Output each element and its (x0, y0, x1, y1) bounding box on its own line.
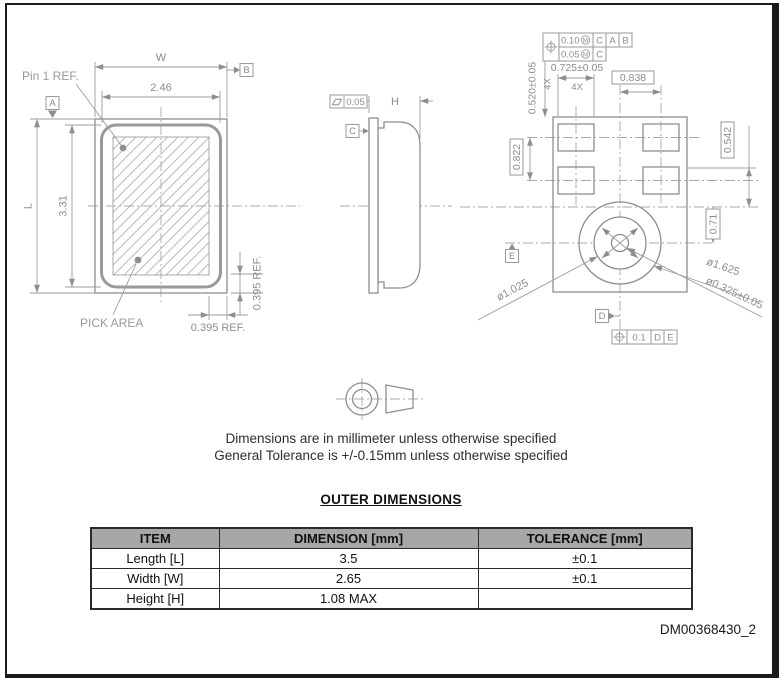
datum-a-flag: A (46, 97, 59, 119)
fcf-r2-datum1: C (596, 50, 603, 61)
pad-pitch-dim: 0.822 (511, 144, 523, 170)
side-view: H 0.05 C (330, 95, 452, 293)
datum-e-flag: E (506, 244, 519, 263)
fcf-r2-mmc: M (583, 52, 588, 59)
pad-height-dim: 0.520±0.05 (527, 62, 539, 115)
ref-right-dim: 0.395 REF. (252, 256, 264, 310)
bottom-view: 0.10 M C A B 0.05 M C 0.520±0.05 4X 0.72… (460, 33, 765, 344)
fcf-r1-datum1: C (596, 36, 603, 47)
document-number: DM00368430_2 (660, 622, 756, 637)
note-line-1: Dimensions are in millimeter unless othe… (0, 431, 782, 448)
note-line-2: General Tolerance is +/-0.15mm unless ot… (0, 448, 782, 465)
pick-area-hatch (113, 137, 209, 275)
fcf2-datum1: D (654, 333, 661, 344)
fcf2-tol: 0.1 (632, 333, 645, 344)
datum-c-label: C (349, 126, 356, 137)
cell-item: Length [L] (91, 549, 219, 569)
col-header-tolerance: TOLERANCE [mm] (478, 528, 692, 549)
cell-item: Width [W] (91, 569, 219, 589)
hole-dia: ø0.325±0.05 (704, 275, 765, 312)
fcf-r1-datum2: A (609, 36, 616, 47)
table-row-width: Width [W] 2.65 ±0.1 (91, 569, 692, 589)
height-label: H (391, 96, 399, 108)
general-notes: Dimensions are in millimeter unless othe… (0, 431, 782, 464)
lid-length-dim: 3.31 (58, 195, 70, 216)
cell-dimension: 2.65 (219, 569, 478, 589)
fcf-r1-mmc: M (583, 38, 588, 45)
table-header-row: ITEM DIMENSION [mm] TOLERANCE [mm] (91, 528, 692, 549)
datum-b-flag: B (227, 64, 253, 77)
drawing-sheet: W 2.46 B A L (0, 0, 782, 685)
table-title: OUTER DIMENSIONS (0, 492, 782, 507)
cell-tolerance: ±0.1 (478, 549, 692, 569)
row-offset-dim: 0.542 (722, 127, 734, 153)
col-header-dimension: DIMENSION [mm] (219, 528, 478, 549)
fcf2-datum2: E (667, 333, 673, 344)
ref-bottom-dim: 0.395 REF. (191, 322, 245, 334)
pin1-ref-label: Pin 1 REF. (22, 69, 79, 83)
cell-dimension: 1.08 MAX (219, 589, 478, 610)
front-width-label: W (156, 52, 167, 64)
ring-inner-dia: ø1.025 (495, 277, 531, 304)
flatness-value: 0.05 (346, 97, 365, 108)
substrate-profile (369, 118, 378, 293)
pin1-dot (120, 145, 127, 152)
pad-width-qty: 4X (571, 82, 583, 93)
port-offset-dim: 0.71 (708, 214, 720, 235)
pad-width-dim: 0.725±0.05 (551, 62, 604, 74)
front-view: W 2.46 B A L (22, 52, 300, 334)
datum-e-label: E (509, 251, 515, 262)
col-header-item: ITEM (91, 528, 219, 549)
table-row-length: Length [L] 3.5 ±0.1 (91, 549, 692, 569)
datum-b-label: B (243, 65, 249, 76)
cell-tolerance (478, 589, 692, 610)
table-row-height: Height [H] 1.08 MAX (91, 589, 692, 610)
cell-item: Height [H] (91, 589, 219, 610)
pad-height-qty: 4X (543, 78, 554, 90)
third-angle-projection-icon (336, 378, 426, 420)
pick-area-label: PICK AREA (80, 316, 143, 330)
datum-a-label: A (49, 98, 56, 109)
fcf-r1-datum3: B (622, 36, 628, 47)
hole-position-fcf: 0.1 D E (612, 330, 677, 344)
front-length-label: L (23, 203, 35, 209)
cell-tolerance: ±0.1 (478, 569, 692, 589)
technical-drawing: W 2.46 B A L (0, 0, 782, 500)
lid-width-dim: 2.46 (150, 82, 171, 94)
pad-offset-dim: 0.838 (620, 72, 646, 84)
pick-area-dot (135, 257, 142, 264)
lid-profile (378, 122, 420, 288)
flatness-fcf: 0.05 (330, 95, 367, 108)
outer-dimensions-table: ITEM DIMENSION [mm] TOLERANCE [mm] Lengt… (90, 527, 693, 610)
datum-d-flag: D (596, 310, 621, 323)
datum-d-label: D (599, 311, 606, 322)
datum-c-flag: C (346, 125, 369, 138)
cell-dimension: 3.5 (219, 549, 478, 569)
fcf-r2-tol: 0.05 (561, 50, 580, 61)
position-fcf: 0.10 M C A B 0.05 M C (543, 33, 632, 61)
fcf-r1-tol: 0.10 (561, 36, 580, 47)
